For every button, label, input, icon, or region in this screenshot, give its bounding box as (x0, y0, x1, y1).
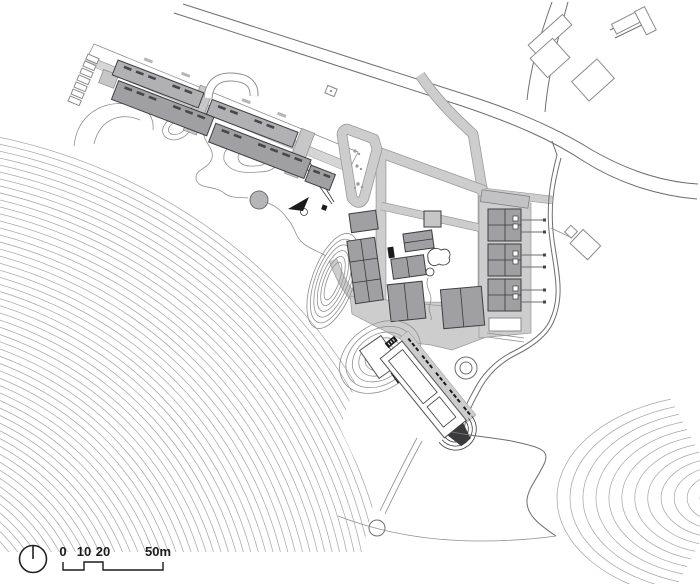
scale-label-10: 10 (77, 544, 91, 559)
north-arrow-icon (20, 546, 47, 573)
site-plan-sheet: 0 10 20 50m (0, 0, 700, 584)
scale-label-0: 0 (59, 544, 66, 559)
road-shelter-dot (330, 90, 332, 92)
tree-marker (250, 191, 268, 209)
building-c (403, 230, 434, 252)
scale-label-50m: 50m (145, 544, 171, 559)
building-d (391, 255, 426, 279)
building-f (387, 281, 426, 321)
building-g (440, 286, 484, 328)
site-plan-drawing: 0 10 20 50m (0, 0, 700, 584)
rowhouse-south-stair (489, 318, 521, 331)
scale-label-20: 20 (96, 544, 110, 559)
tree-blob (428, 248, 450, 265)
building-a (349, 210, 378, 233)
building-e-pavilion (424, 211, 441, 227)
